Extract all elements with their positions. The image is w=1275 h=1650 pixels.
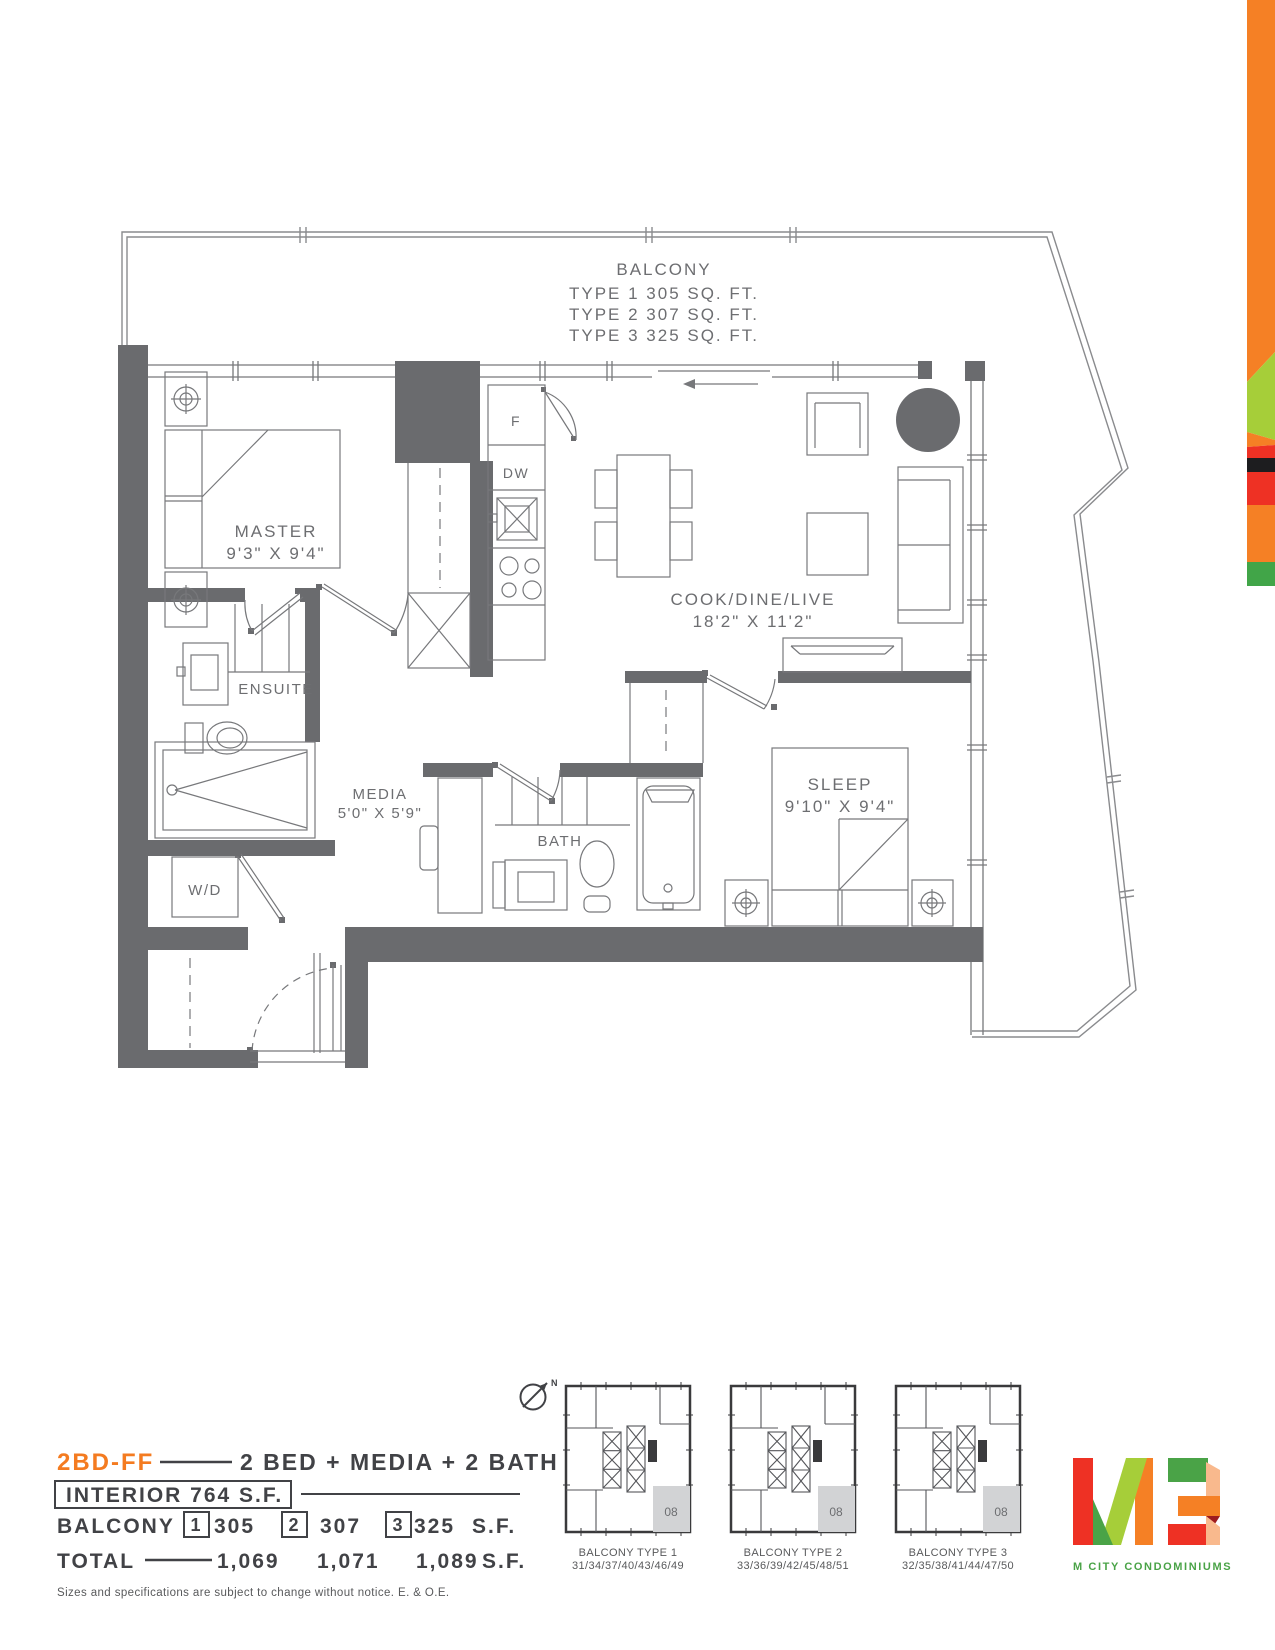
label-fridge: F [511,413,521,429]
balcony-opt2-num: 2 [288,1515,300,1535]
room-label-sleep: SLEEP [808,775,873,794]
slider-arrow [683,379,695,389]
balcony-note-line3: TYPE 3 325 SQ. FT. [569,326,759,345]
total-2: 1,071 [317,1550,380,1573]
balcony-opt3-num: 3 [392,1515,404,1535]
walls [118,345,985,1068]
keyplan1-label: BALCONY TYPE 1 [579,1547,678,1559]
total-label: TOTAL [57,1550,135,1573]
room-dims-media: 5'0" X 5'9" [338,805,423,822]
floor-plan-canvas: BALCONY TYPE 1 305 SQ. FT. TYPE 2 307 SQ… [0,0,1275,1650]
brand-color-strip [1247,0,1275,586]
total-1: 1,069 [217,1550,280,1573]
keyplan2-units: 33/36/39/42/45/48/51 [737,1560,849,1572]
keyplan2-unit: 08 [829,1505,843,1519]
balcony-opt2-area: 307 [320,1515,361,1538]
legend: 2BD-FF 2 BED + MEDIA + 2 BATH INTERIOR 7… [55,1449,559,1599]
keyplan1-units: 31/34/37/40/43/46/49 [572,1560,684,1572]
room-label-ensuite: ENSUITE [238,681,314,698]
balcony-outline [122,227,1136,1037]
balcony-opt1-area: 305 [214,1515,255,1538]
room-label-bath: BATH [538,833,583,850]
north-compass-icon [521,1383,548,1410]
logo-tagline: M CITY CONDOMINIUMS [1073,1561,1232,1573]
keyplan3-unit: 08 [994,1505,1008,1519]
floorplan-page: BALCONY TYPE 1 305 SQ. FT. TYPE 2 307 SQ… [0,0,1275,1650]
room-label-living: COOK/DINE/LIVE [671,590,836,609]
keyplan3-units: 32/35/38/41/44/47/50 [902,1560,1014,1572]
disclaimer: Sizes and specifications are subject to … [57,1587,450,1599]
label-washer-dryer: W/D [188,882,222,899]
balcony-opt1-num: 1 [190,1515,202,1535]
total-3: 1,089 [416,1550,479,1573]
m3-logo: M CITY CONDOMINIUMS [1073,1458,1232,1573]
balcony-opt3-area: 325 [414,1515,455,1538]
room-label-master: MASTER [235,522,318,541]
balcony-note-line2: TYPE 2 307 SQ. FT. [569,305,759,324]
keyplan2-label: BALCONY TYPE 2 [744,1547,843,1559]
keyplan1-unit: 08 [664,1505,678,1519]
unit-desc: 2 BED + MEDIA + 2 BATH [240,1449,559,1475]
unit-code: 2BD-FF [57,1449,154,1476]
balcony-note-title: BALCONY [616,260,711,279]
room-label-media: MEDIA [352,786,407,803]
balcony-note-line1: TYPE 1 305 SQ. FT. [569,284,759,303]
room-dims-living: 18'2" X 11'2" [693,612,814,631]
room-dims-master: 9'3" X 9'4" [226,544,325,563]
total-unit: S.F. [482,1550,526,1573]
balcony-label: BALCONY [57,1515,175,1538]
balcony-unit: S.F. [472,1515,516,1538]
keyplan3-label: BALCONY TYPE 3 [909,1547,1008,1559]
label-dishwasher: DW [503,465,529,481]
keyplans: N 08 08 08 BALCONY TYPE 1 31/34/37/40/43… [521,1378,1024,1572]
north-label: N [551,1378,558,1388]
room-dims-sleep: 9'10" X 9'4" [785,797,896,816]
interior-area: INTERIOR 764 S.F. [66,1484,283,1507]
